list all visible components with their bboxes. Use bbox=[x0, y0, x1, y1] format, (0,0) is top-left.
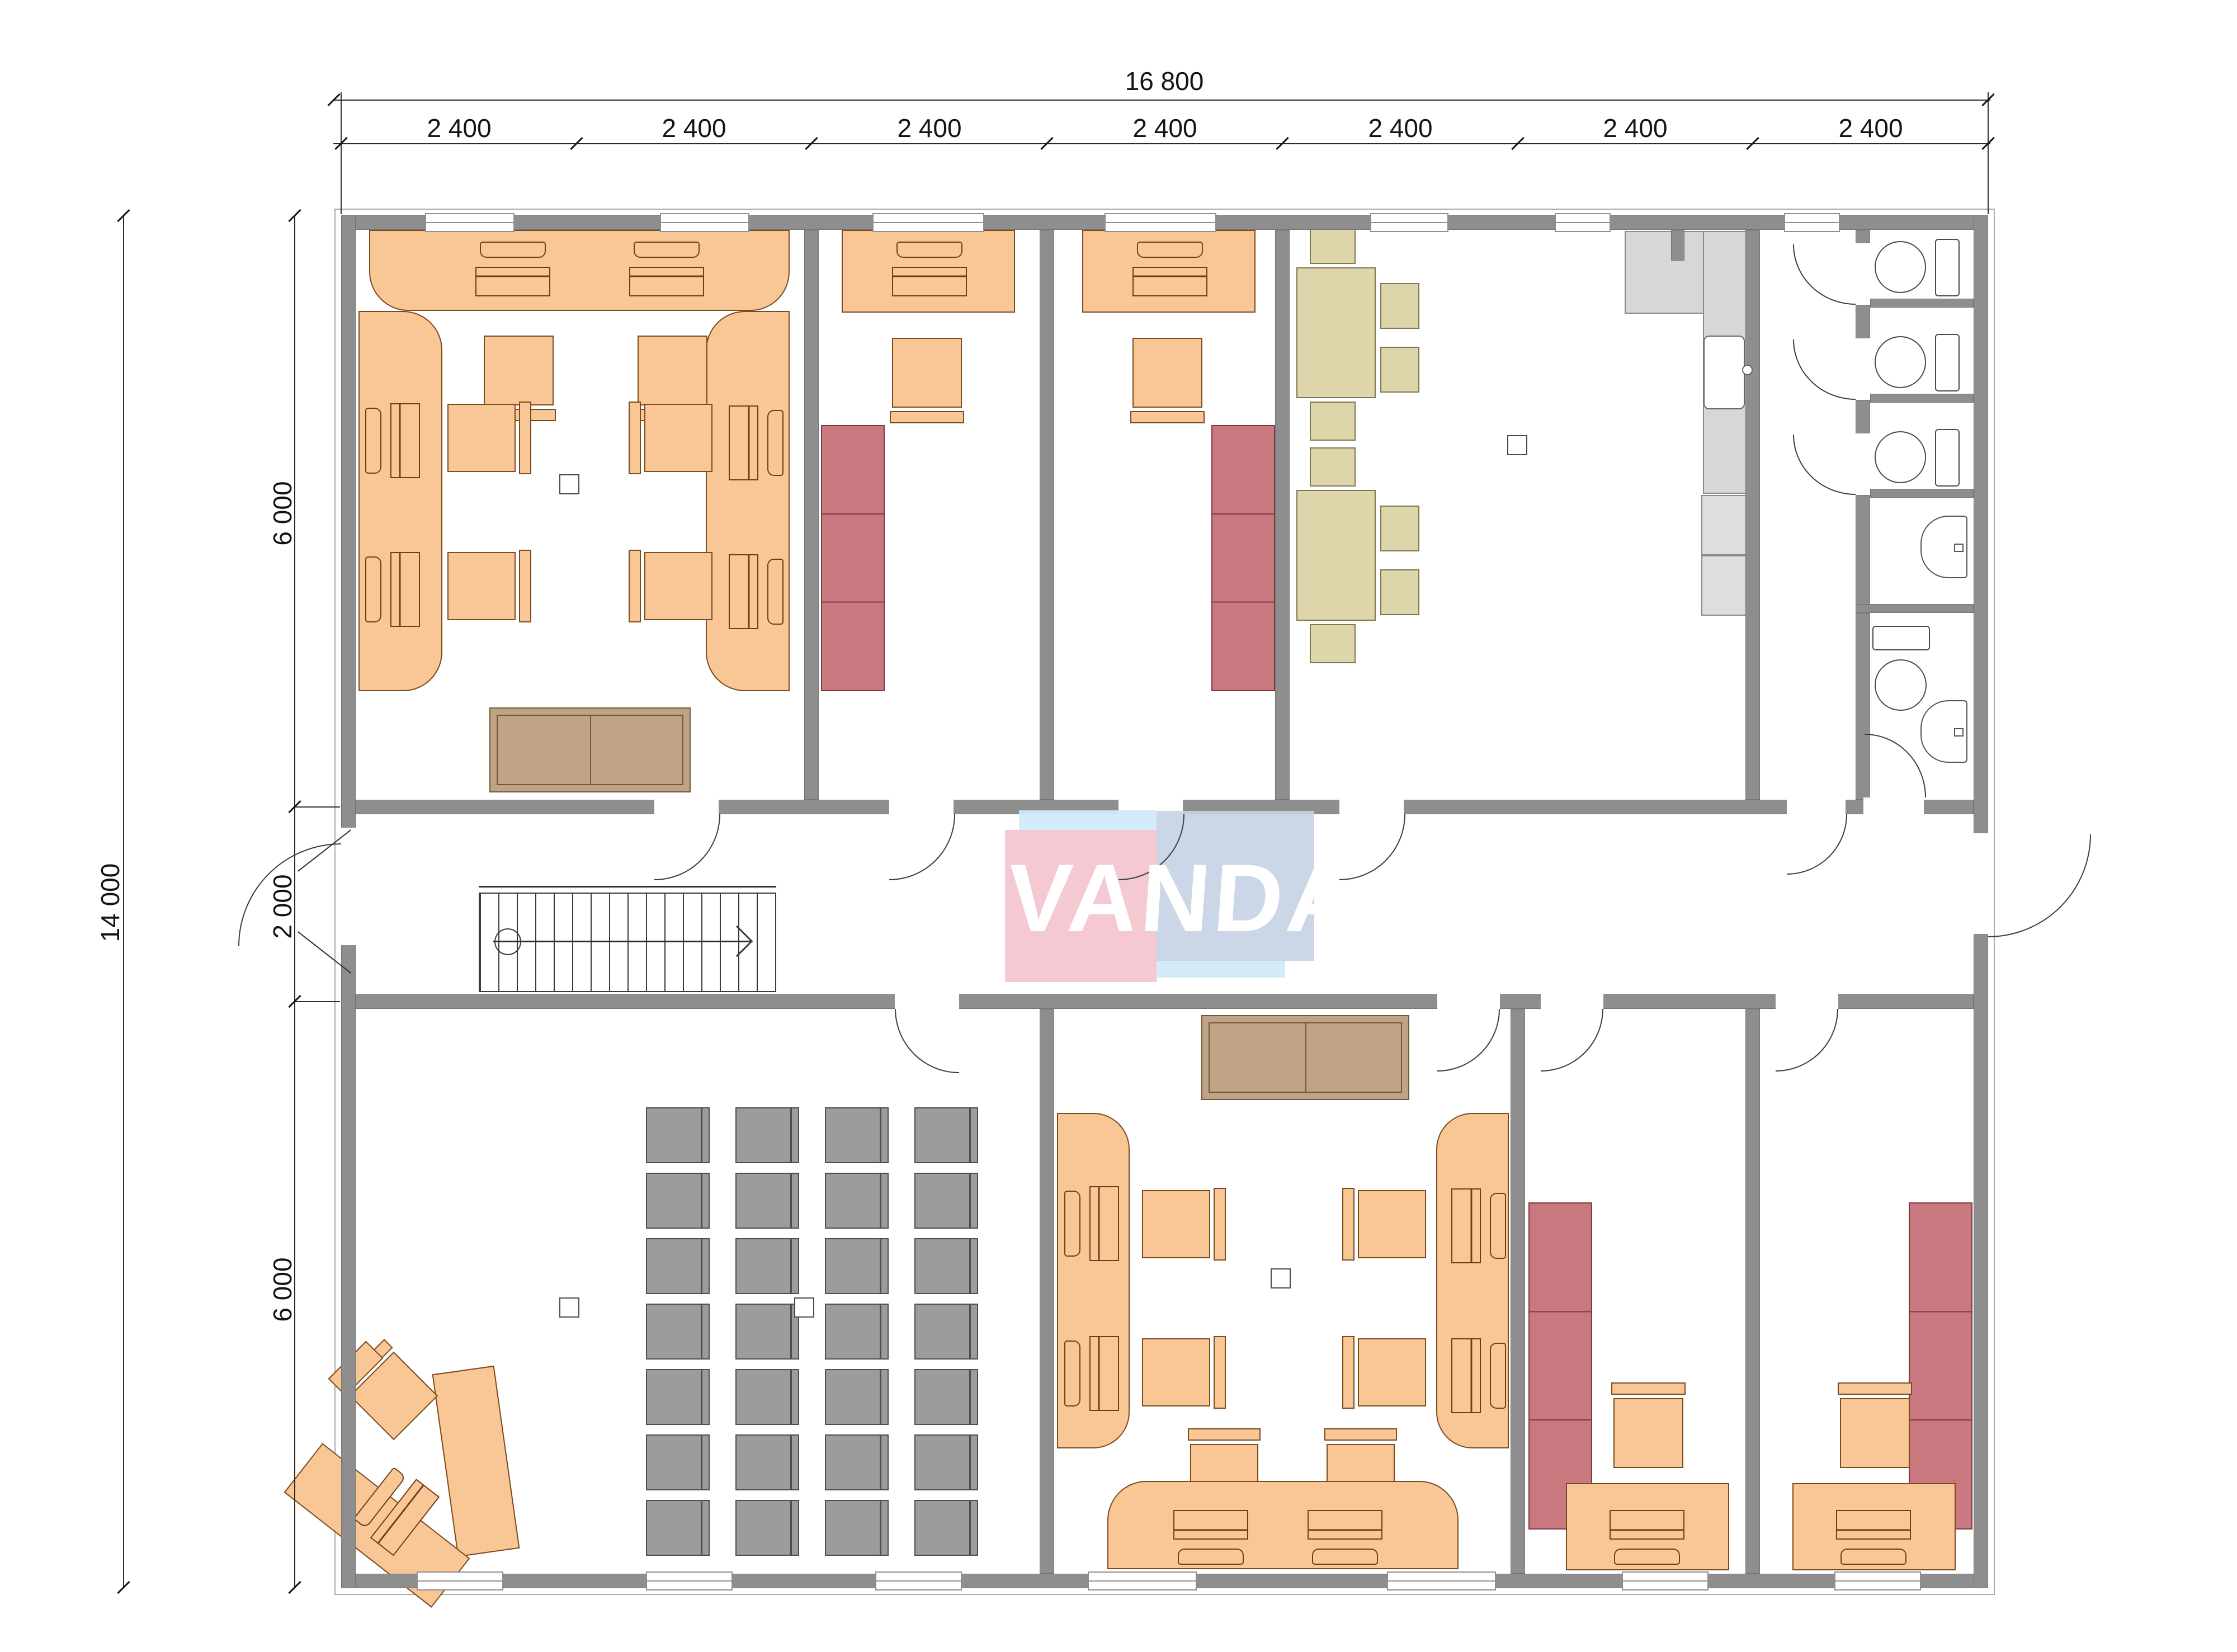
toilet bbox=[1875, 237, 1960, 296]
door-opening bbox=[889, 797, 954, 816]
workstation bbox=[1612, 1510, 1684, 1565]
door-opening bbox=[1863, 797, 1924, 816]
dim-row-label: 2 000 bbox=[267, 851, 298, 962]
entrance-door-swing bbox=[1988, 834, 2091, 937]
meeting-chair bbox=[1310, 402, 1356, 441]
window bbox=[1088, 1571, 1197, 1590]
partition bbox=[1275, 230, 1290, 800]
auditorium-chair bbox=[735, 1107, 791, 1163]
office-chair bbox=[892, 338, 962, 408]
dim-column-label: 2 400 bbox=[409, 113, 509, 143]
dim-column-label: 2 400 bbox=[1350, 113, 1451, 143]
dim-column-label: 2 400 bbox=[1820, 113, 1921, 143]
auditorium-chair bbox=[914, 1500, 970, 1556]
witness-line bbox=[341, 92, 342, 214]
office-chair bbox=[1358, 1338, 1426, 1406]
witness-line bbox=[1988, 92, 1989, 214]
red-cabinet bbox=[1909, 1202, 1972, 1530]
auditorium-chair bbox=[646, 1238, 702, 1294]
sofa bbox=[489, 707, 691, 792]
office-chair bbox=[1142, 1338, 1210, 1406]
dim-line-total-width bbox=[333, 100, 1990, 101]
meeting-chair bbox=[1380, 506, 1419, 551]
column-marker bbox=[559, 1297, 579, 1318]
column-marker bbox=[794, 1297, 814, 1318]
auditorium-chair bbox=[914, 1304, 970, 1360]
stair-arrow-shaft bbox=[493, 941, 751, 942]
auditorium-chair bbox=[825, 1238, 881, 1294]
auditorium-chair bbox=[735, 1500, 791, 1556]
workstation bbox=[892, 242, 965, 296]
auditorium-chair bbox=[646, 1304, 702, 1360]
floor-plan-canvas: 16 800 2 400 2 400 2 400 2 400 2 400 2 4… bbox=[0, 0, 2237, 1652]
dim-column-label: 2 400 bbox=[1585, 113, 1686, 143]
auditorium-chair bbox=[914, 1434, 970, 1490]
wc-front-wall bbox=[1856, 495, 1870, 610]
door-opening bbox=[895, 992, 959, 1011]
office-chair bbox=[1840, 1398, 1910, 1468]
door-opening bbox=[1776, 992, 1838, 1011]
partition bbox=[1040, 230, 1054, 800]
window bbox=[417, 1571, 503, 1590]
auditorium-chair bbox=[646, 1107, 702, 1163]
stair-start-circle bbox=[494, 928, 521, 955]
workstation bbox=[729, 405, 784, 478]
logo-text: VANDA bbox=[1004, 850, 1313, 945]
auditorium-chair bbox=[825, 1434, 881, 1490]
auditorium-chair bbox=[825, 1107, 881, 1163]
partition bbox=[1745, 230, 1760, 800]
workstation bbox=[1451, 1188, 1506, 1261]
workstation bbox=[475, 242, 548, 296]
office-counter bbox=[706, 311, 790, 691]
meeting-chair bbox=[1380, 347, 1419, 393]
column-marker bbox=[1271, 1268, 1291, 1288]
wall-corridor-bottom bbox=[356, 994, 1974, 1009]
entrance-opening bbox=[1971, 833, 1990, 934]
wc-divider bbox=[1856, 604, 1974, 613]
auditorium-chair bbox=[646, 1500, 702, 1556]
office-chair bbox=[1358, 1190, 1426, 1258]
window bbox=[1784, 213, 1840, 232]
dim-column-label: 2 400 bbox=[1115, 113, 1215, 143]
workstation bbox=[1064, 1338, 1119, 1411]
office-chair bbox=[447, 552, 516, 620]
dim-column-label: 2 400 bbox=[879, 113, 980, 143]
office-chair bbox=[638, 336, 707, 405]
auditorium-chair bbox=[646, 1434, 702, 1490]
toilet bbox=[1871, 626, 1930, 711]
office-counter bbox=[369, 230, 790, 311]
meeting-table bbox=[1296, 267, 1376, 398]
window bbox=[646, 1571, 733, 1590]
auditorium-chair bbox=[825, 1304, 881, 1360]
auditorium-chair bbox=[914, 1369, 970, 1425]
dim-line-columns bbox=[333, 143, 1990, 144]
red-cabinet bbox=[1528, 1202, 1592, 1530]
witness-line bbox=[295, 806, 340, 808]
meeting-chair bbox=[1310, 624, 1356, 663]
workstation bbox=[365, 554, 420, 627]
meeting-chair bbox=[1380, 283, 1419, 329]
wc-front-wall bbox=[1856, 400, 1870, 433]
partition bbox=[804, 230, 819, 800]
auditorium-chair bbox=[914, 1173, 970, 1229]
kitchen-cabinet bbox=[1701, 555, 1748, 616]
workstation bbox=[365, 405, 420, 478]
auditorium-chair bbox=[735, 1173, 791, 1229]
wc-front-wall bbox=[1856, 230, 1870, 243]
window bbox=[875, 1571, 962, 1590]
office-counter bbox=[1107, 1481, 1459, 1569]
wc-front-wall bbox=[1856, 305, 1870, 338]
sofa bbox=[1201, 1015, 1409, 1100]
wc-divider bbox=[1870, 394, 1974, 403]
kitchen-cabinet bbox=[1701, 495, 1748, 555]
window bbox=[1555, 213, 1611, 232]
auditorium-chair bbox=[646, 1369, 702, 1425]
kitchen-counter bbox=[1625, 231, 1715, 314]
window bbox=[1622, 1571, 1709, 1590]
partition bbox=[1745, 1009, 1760, 1574]
window bbox=[425, 213, 515, 232]
door-opening bbox=[1339, 797, 1404, 816]
dim-total-height-label: 14 000 bbox=[95, 847, 125, 959]
office-chair bbox=[644, 552, 712, 620]
window bbox=[1834, 1571, 1921, 1590]
dim-total-width-label: 16 800 bbox=[1097, 66, 1231, 96]
office-chair bbox=[644, 404, 712, 472]
washbasin bbox=[1920, 700, 1967, 763]
workstation bbox=[729, 554, 784, 627]
red-cabinet bbox=[1211, 425, 1275, 691]
auditorium-chair bbox=[735, 1304, 791, 1360]
window bbox=[1387, 1571, 1496, 1590]
workstation bbox=[1451, 1338, 1506, 1411]
workstation bbox=[1838, 1510, 1911, 1565]
auditorium-chair bbox=[914, 1107, 970, 1163]
door-opening bbox=[1437, 992, 1500, 1011]
auditorium-chair bbox=[825, 1500, 881, 1556]
partition bbox=[1511, 1009, 1525, 1574]
office-chair bbox=[484, 336, 554, 405]
workstation bbox=[1064, 1188, 1119, 1261]
auditorium-chair bbox=[646, 1173, 702, 1229]
auditorium-chair bbox=[825, 1173, 881, 1229]
window bbox=[660, 213, 749, 232]
toilet bbox=[1875, 427, 1960, 487]
window bbox=[1370, 213, 1448, 232]
door-opening bbox=[1787, 797, 1846, 816]
meeting-table bbox=[1296, 490, 1376, 621]
witness-line bbox=[295, 1001, 340, 1002]
wc-divider bbox=[1870, 299, 1974, 308]
entrance-opening bbox=[339, 828, 358, 945]
office-counter bbox=[358, 311, 442, 691]
column-marker bbox=[1507, 435, 1527, 455]
meeting-chair bbox=[1310, 447, 1356, 487]
dim-column-label: 2 400 bbox=[644, 113, 744, 143]
kitchen-sink bbox=[1703, 336, 1745, 409]
workstation bbox=[1310, 1510, 1382, 1565]
column-marker bbox=[559, 474, 579, 494]
workstation bbox=[1132, 242, 1205, 296]
red-cabinet bbox=[821, 425, 885, 691]
partition bbox=[1040, 1009, 1054, 1574]
stair-landing-line bbox=[479, 886, 776, 888]
door-opening bbox=[1541, 992, 1603, 1011]
door-opening bbox=[654, 797, 719, 816]
workstation bbox=[1176, 1510, 1248, 1565]
meeting-chair bbox=[1380, 569, 1419, 615]
auditorium-chair bbox=[735, 1369, 791, 1425]
workstation bbox=[629, 242, 702, 296]
washbasin bbox=[1920, 516, 1967, 578]
dim-row-label: 6 000 bbox=[267, 1234, 298, 1346]
kitchen-stub bbox=[1671, 230, 1684, 261]
auditorium-chair bbox=[914, 1238, 970, 1294]
wc-divider bbox=[1870, 489, 1974, 498]
auditorium-chair bbox=[825, 1369, 881, 1425]
office-chair bbox=[1613, 1398, 1683, 1468]
auditorium-chair bbox=[735, 1238, 791, 1294]
auditorium-chair bbox=[735, 1434, 791, 1490]
toilet bbox=[1875, 332, 1960, 391]
office-chair bbox=[1132, 338, 1202, 408]
meeting-chair bbox=[1310, 225, 1356, 264]
window bbox=[872, 213, 984, 232]
office-chair bbox=[447, 404, 516, 472]
dim-row-label: 6 000 bbox=[267, 457, 298, 569]
window bbox=[1105, 213, 1216, 232]
office-chair bbox=[1142, 1190, 1210, 1258]
